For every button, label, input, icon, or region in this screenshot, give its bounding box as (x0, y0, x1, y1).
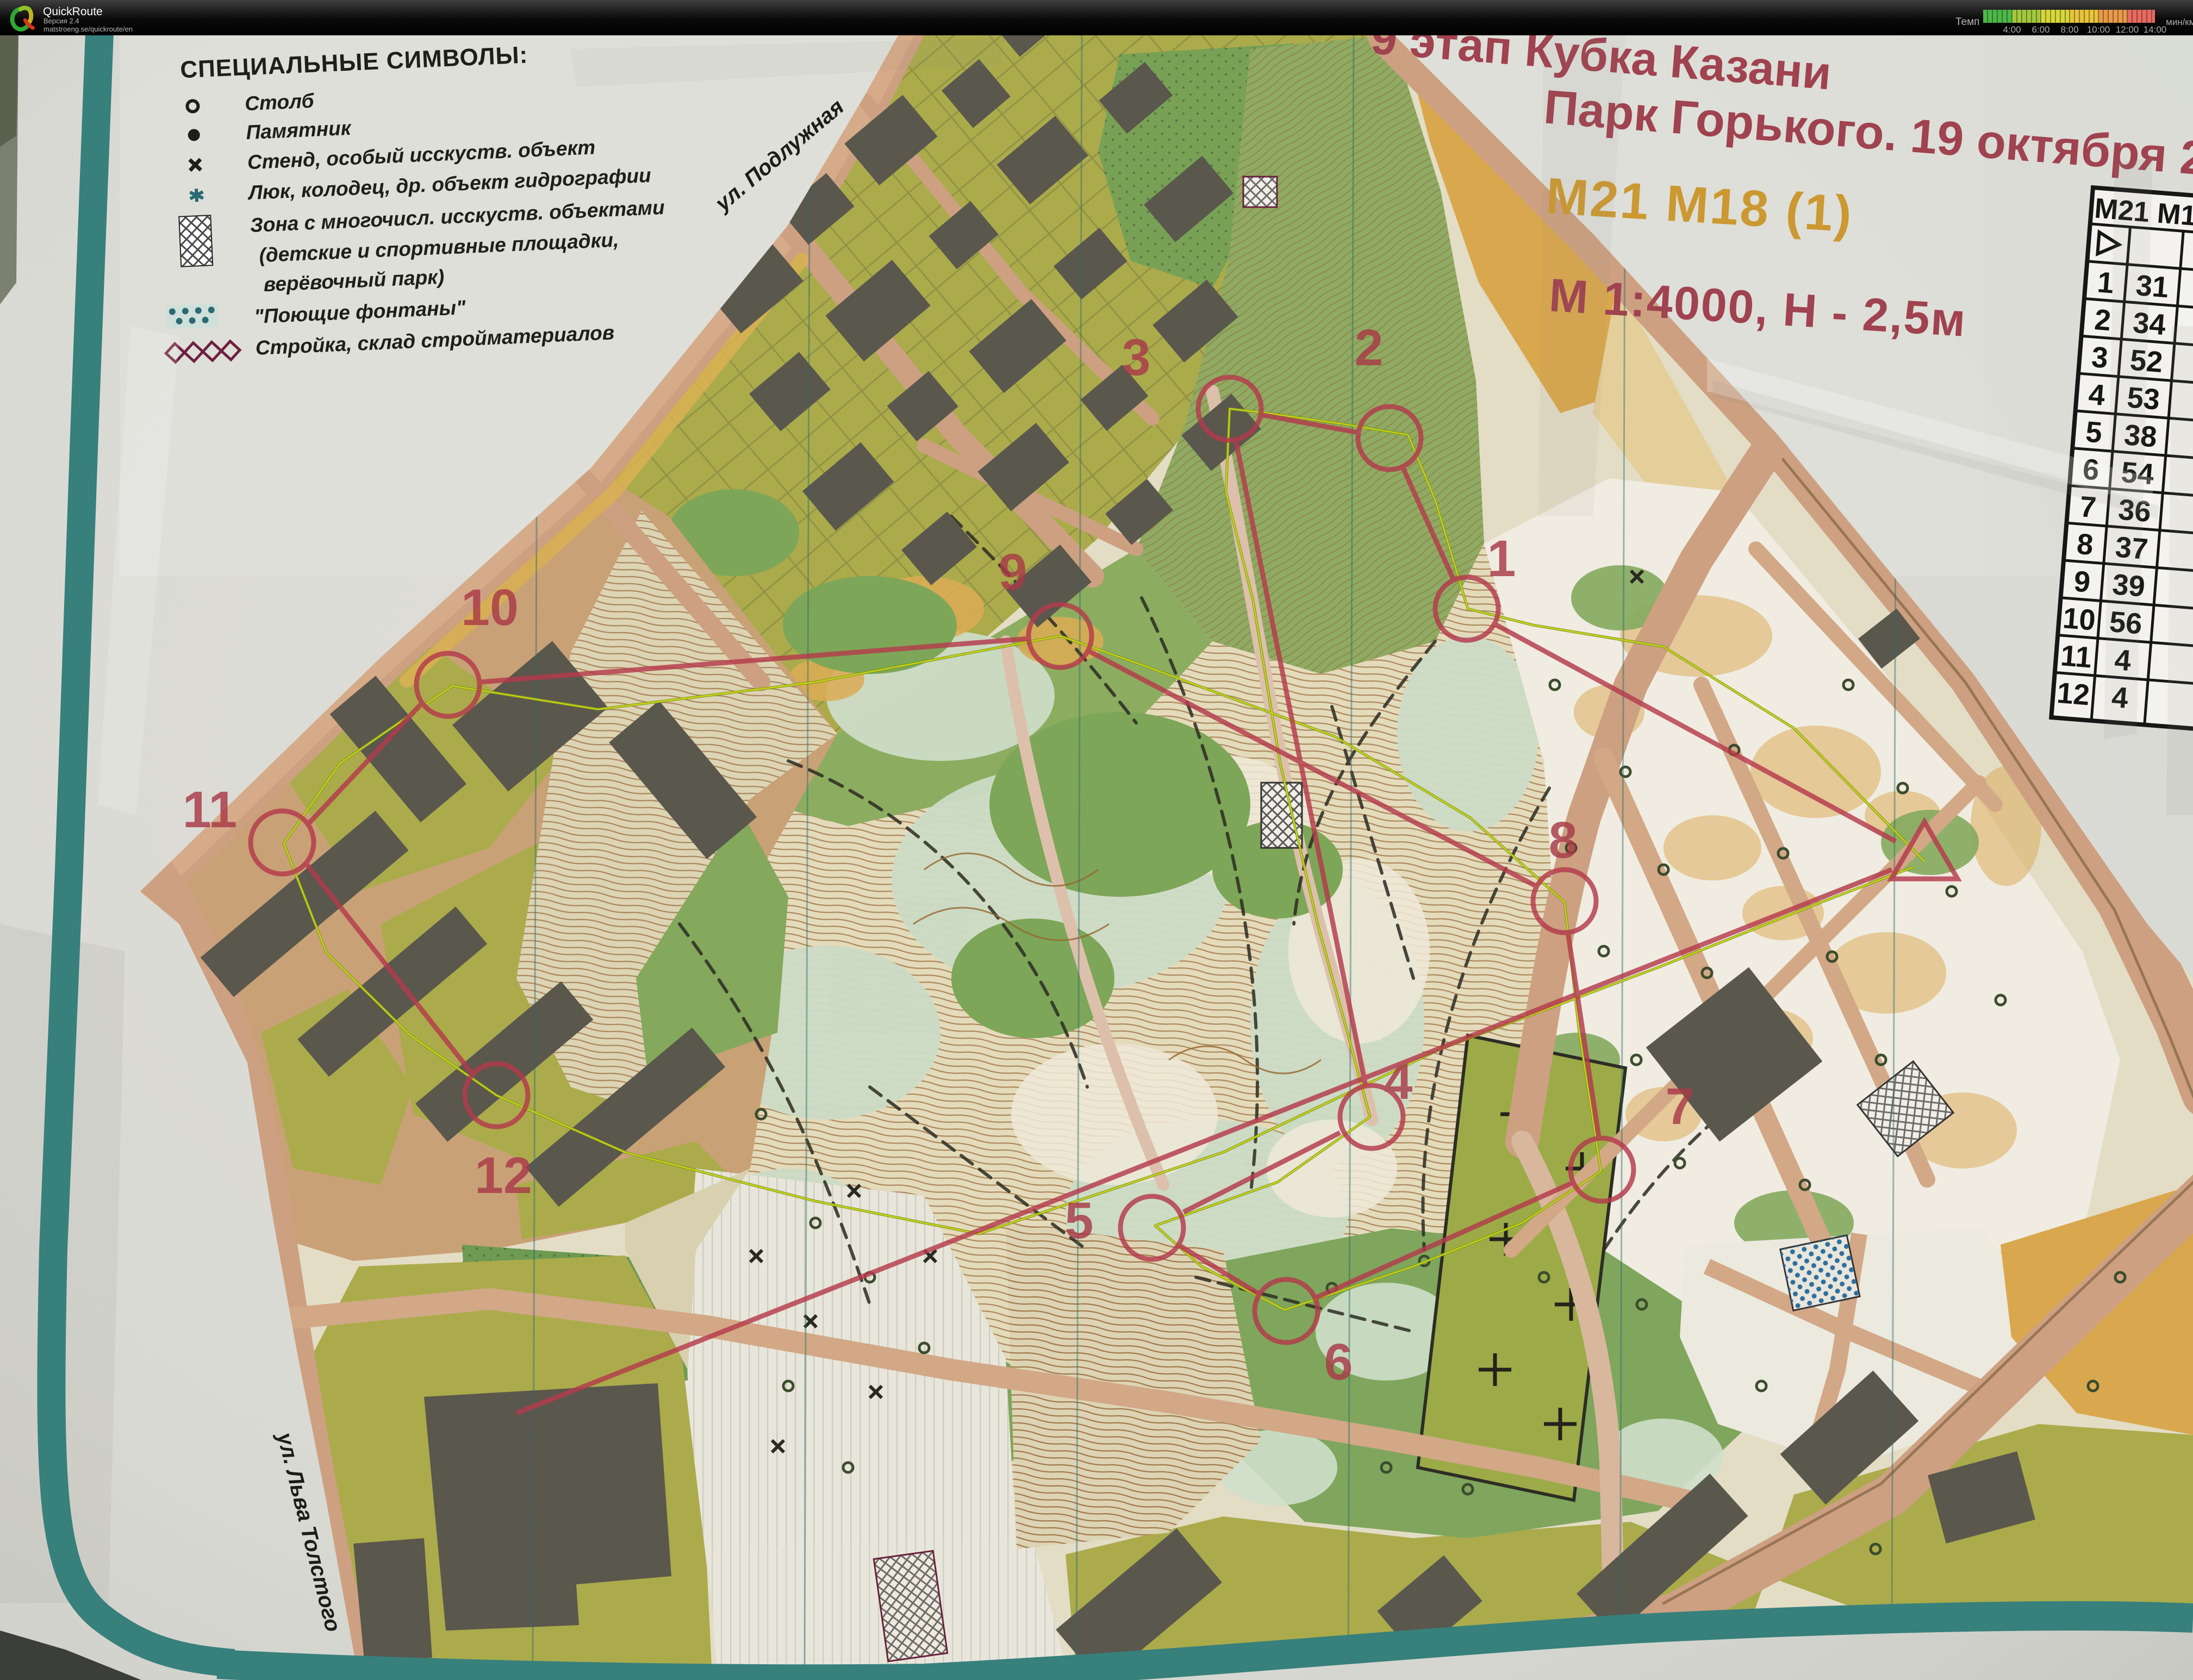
svg-text:QuickRoute: QuickRoute (43, 5, 103, 18)
svg-text:12: 12 (475, 1147, 532, 1204)
svg-text:5: 5 (1065, 1192, 1094, 1250)
svg-text:10: 10 (461, 579, 519, 636)
svg-text:Памятник: Памятник (246, 117, 353, 143)
svg-text:10: 10 (2061, 602, 2097, 637)
svg-text:2: 2 (2094, 303, 2113, 337)
svg-text:1: 1 (1487, 530, 1516, 588)
svg-text:12: 12 (2055, 677, 2091, 712)
svg-text:4: 4 (2088, 378, 2107, 412)
svg-text:matstroeng.se/quickroute/en: matstroeng.se/quickroute/en (43, 25, 133, 33)
svg-text:8:00: 8:00 (2060, 24, 2078, 35)
svg-text:5: 5 (2084, 415, 2103, 449)
svg-text:7: 7 (1666, 1078, 1694, 1135)
svg-text:14:00: 14:00 (2144, 24, 2167, 35)
svg-text:6:00: 6:00 (2032, 24, 2049, 35)
svg-text:11: 11 (183, 781, 237, 839)
svg-text:8: 8 (1549, 811, 1578, 869)
svg-text:10:00: 10:00 (2087, 24, 2110, 35)
svg-text:мин/км: мин/км (2166, 17, 2193, 27)
svg-text:Столб: Столб (244, 90, 315, 115)
svg-text:4:00: 4:00 (2003, 24, 2021, 35)
svg-text:11: 11 (2059, 639, 2093, 674)
svg-text:4: 4 (1384, 1053, 1413, 1110)
svg-text:6: 6 (1324, 1333, 1353, 1391)
svg-text:9: 9 (999, 544, 1027, 601)
svg-text:Версия 2.4: Версия 2.4 (43, 17, 79, 25)
svg-text:2: 2 (1355, 319, 1384, 377)
svg-text:12:00: 12:00 (2116, 24, 2139, 35)
svg-text:3: 3 (1122, 329, 1151, 386)
svg-text:8: 8 (2076, 528, 2095, 561)
svg-text:Темп: Темп (1955, 16, 1979, 28)
svg-text:9: 9 (2073, 565, 2092, 599)
svg-text:3: 3 (2090, 341, 2109, 374)
